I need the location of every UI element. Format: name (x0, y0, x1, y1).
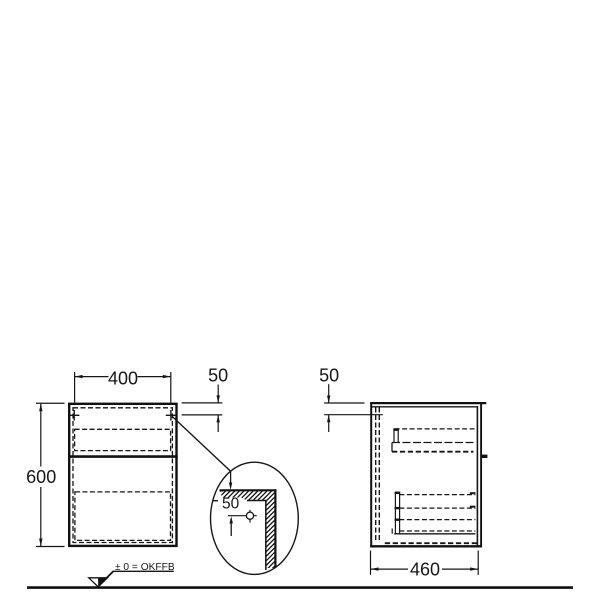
svg-text:600: 600 (26, 467, 56, 487)
svg-text:460: 460 (410, 560, 440, 580)
svg-text:50: 50 (208, 365, 228, 385)
svg-text:50: 50 (222, 496, 240, 513)
svg-text:50: 50 (319, 366, 339, 386)
svg-text:400: 400 (108, 368, 138, 388)
